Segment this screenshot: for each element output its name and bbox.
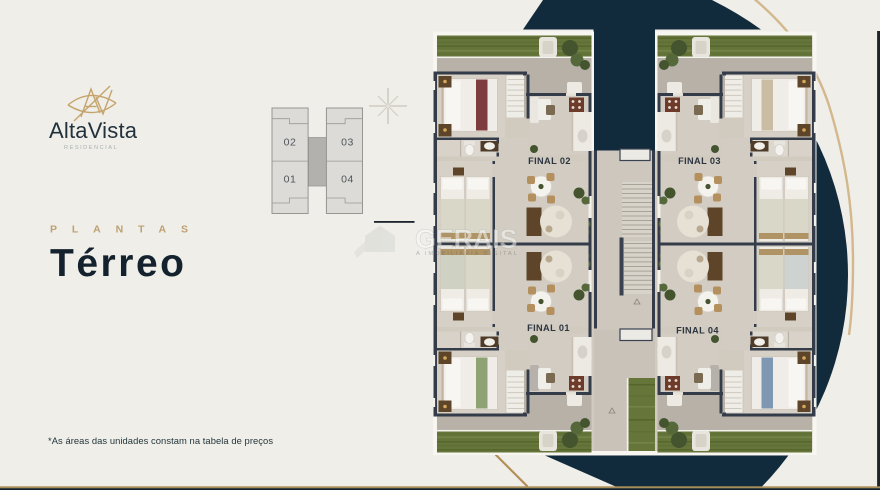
svg-text:03: 03 — [341, 137, 354, 149]
svg-text:FINAL 01: FINAL 01 — [527, 323, 570, 333]
svg-text:01: 01 — [284, 174, 297, 186]
svg-text:FINAL 03: FINAL 03 — [678, 156, 721, 166]
svg-text:FINAL 02: FINAL 02 — [528, 156, 571, 166]
svg-text:AltaVista: AltaVista — [49, 118, 138, 143]
svg-text:PLANTAS: PLANTAS — [50, 224, 196, 236]
svg-text:02: 02 — [284, 137, 297, 149]
svg-text:GERAIS: GERAIS — [415, 224, 519, 254]
svg-text:04: 04 — [341, 174, 354, 186]
svg-text:*As áreas das unidades constam: *As áreas das unidades constam na tabela… — [48, 435, 273, 446]
svg-text:A IMOBILIÁRIA DIGITAL: A IMOBILIÁRIA DIGITAL — [416, 250, 518, 257]
svg-text:FINAL 04: FINAL 04 — [676, 326, 719, 336]
svg-text:Térreo: Térreo — [50, 242, 185, 285]
svg-text:RESIDENCIAL: RESIDENCIAL — [64, 145, 119, 151]
